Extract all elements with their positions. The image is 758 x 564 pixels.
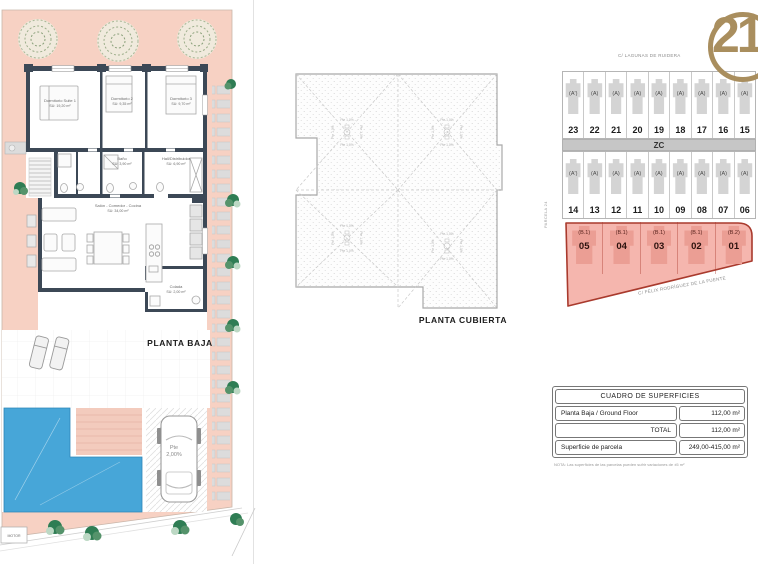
plot-number: 11 bbox=[627, 205, 647, 215]
plot-type-label: (A) bbox=[627, 171, 647, 177]
plot-number: 16 bbox=[713, 125, 733, 135]
plot-type-label: (A) bbox=[713, 171, 733, 177]
svg-text:Salón - Comedor - Cocina: Salón - Comedor - Cocina bbox=[95, 203, 142, 208]
svg-text:Pte 1,0%: Pte 1,0% bbox=[331, 231, 335, 244]
plot-cell-highlighted: (B.1) 02 bbox=[677, 222, 714, 274]
plot-number: 05 bbox=[566, 241, 602, 252]
svg-text:Pte 1,0%: Pte 1,0% bbox=[340, 249, 353, 253]
plot-number: 15 bbox=[735, 125, 755, 135]
plot-cell: (A) 11 bbox=[626, 152, 647, 218]
parcel-side-label: PARCELA 24 bbox=[543, 158, 548, 228]
svg-text:Dormitorio Suite 1: Dormitorio Suite 1 bbox=[44, 98, 77, 103]
plot-type-label: (B.1) bbox=[566, 230, 602, 236]
svg-text:Pte 1,0%: Pte 1,0% bbox=[431, 239, 435, 252]
table-note: NOTA: Las superficies de las parcelas pu… bbox=[554, 462, 684, 467]
svg-text:Hall/Distribuidor: Hall/Distribuidor bbox=[162, 156, 191, 161]
plot-cell: (A) 09 bbox=[669, 152, 690, 218]
plot-cell: (A) 13 bbox=[583, 152, 604, 218]
plot-type-label: (A) bbox=[627, 91, 647, 97]
plot-number: 21 bbox=[606, 125, 626, 135]
plot-type-label: (A) bbox=[649, 91, 669, 97]
row-value: 249,00-415,00 m² bbox=[679, 440, 745, 455]
motor-room: MOTOR bbox=[1, 527, 27, 543]
row-label: TOTAL bbox=[555, 423, 677, 438]
plot-type-label: (B.2) bbox=[716, 230, 752, 236]
roof-plan: Pte 1,0% Pte 1,0% Pte 1,0% Pte 1,0% Pte … bbox=[285, 62, 510, 332]
plot-cell: (A) 19 bbox=[648, 72, 669, 138]
plot-type-label: (A) bbox=[735, 91, 755, 97]
zc-zone-bar: ZC bbox=[562, 139, 756, 151]
plot-type-label: (A) bbox=[692, 171, 712, 177]
plot-number: 03 bbox=[641, 241, 677, 252]
row-label: Planta Baja / Ground Floor bbox=[555, 406, 677, 421]
outdoor-chairs bbox=[27, 215, 36, 267]
slope-label: Pte bbox=[170, 445, 178, 451]
slope-value: 2,00% bbox=[166, 452, 182, 458]
plan-sheet: { "floor_plan": { "title": "PLANTA BAJA"… bbox=[0, 0, 758, 564]
surfaces-table-title: CUADRO DE SUPERFICIES bbox=[555, 389, 745, 404]
svg-text:SU: 19,20 m²: SU: 19,20 m² bbox=[49, 104, 71, 108]
plot-type-label: (A) bbox=[670, 91, 690, 97]
street-name-top: C/ LAGUNAS DE RUIDERA bbox=[618, 53, 681, 58]
plot-number: 17 bbox=[692, 125, 712, 135]
svg-text:SU: 3,90 m²: SU: 3,90 m² bbox=[112, 162, 132, 166]
plot-type-label: (A) bbox=[735, 171, 755, 177]
row-value: 112,00 m² bbox=[679, 406, 745, 421]
ground-floor-title: PLANTA BAJA bbox=[147, 338, 213, 348]
svg-text:Pte 1,0%: Pte 1,0% bbox=[359, 231, 363, 244]
table-row: TOTAL 112,00 m² bbox=[555, 423, 745, 438]
plot-number: 06 bbox=[735, 205, 755, 215]
svg-text:Pte 1,0%: Pte 1,0% bbox=[459, 125, 463, 138]
plot-cell: (A') 23 bbox=[563, 72, 583, 138]
plot-number: 01 bbox=[716, 241, 752, 252]
plot-number: 10 bbox=[649, 205, 669, 215]
plot-type-label: (A) bbox=[606, 171, 626, 177]
plot-type-label: (B.1) bbox=[641, 230, 677, 236]
plot-type-label: (A) bbox=[692, 91, 712, 97]
plot-cell: (A) 21 bbox=[605, 72, 626, 138]
plot-cell-highlighted: (B.1) 05 bbox=[566, 222, 602, 274]
plot-number: 12 bbox=[606, 205, 626, 215]
plot-cell: (A) 10 bbox=[648, 152, 669, 218]
century21-logo: 21 bbox=[700, 4, 758, 90]
plot-type-label: (B.1) bbox=[603, 230, 639, 236]
plot-number: 08 bbox=[692, 205, 712, 215]
svg-text:MOTOR: MOTOR bbox=[8, 534, 21, 538]
plot-type-label: (A) bbox=[670, 171, 690, 177]
svg-text:Pte 1,0%: Pte 1,0% bbox=[459, 239, 463, 252]
plot-type-label: (B.1) bbox=[678, 230, 714, 236]
svg-text:Pte 1,0%: Pte 1,0% bbox=[440, 118, 453, 122]
svg-text:Dormitorio 3: Dormitorio 3 bbox=[170, 96, 193, 101]
svg-text:SU: 34,00 m²: SU: 34,00 m² bbox=[107, 209, 129, 213]
garden-trees bbox=[18, 19, 217, 62]
svg-text:Pte 1,0%: Pte 1,0% bbox=[340, 224, 353, 228]
logo-21-text: 21 bbox=[712, 6, 758, 64]
plot-number: 02 bbox=[678, 241, 714, 252]
plot-cell-highlighted: (B.2) 01 bbox=[715, 222, 752, 274]
roof-plan-title: PLANTA CUBIERTA bbox=[419, 315, 507, 325]
plot-cell: (A) 12 bbox=[605, 152, 626, 218]
svg-text:Baño: Baño bbox=[117, 156, 127, 161]
plot-cell: (A) 08 bbox=[691, 152, 712, 218]
svg-text:SU: 9,70 m²: SU: 9,70 m² bbox=[171, 102, 191, 106]
svg-text:Pte 1,0%: Pte 1,0% bbox=[440, 143, 453, 147]
plot-cell: (A) 22 bbox=[583, 72, 604, 138]
plot-cell: (A) 18 bbox=[669, 72, 690, 138]
table-row: Superficie de parcela 249,00-415,00 m² bbox=[555, 440, 745, 455]
plot-number: 19 bbox=[649, 125, 669, 135]
pool-deck bbox=[76, 408, 142, 455]
plot-type-label: (A) bbox=[584, 171, 604, 177]
plot-number: 18 bbox=[670, 125, 690, 135]
svg-text:Dormitorio 2: Dormitorio 2 bbox=[111, 96, 134, 101]
svg-text:Pte 1,0%: Pte 1,0% bbox=[431, 125, 435, 138]
svg-text:Pte 1,0%: Pte 1,0% bbox=[440, 232, 453, 236]
plot-type-label: (A) bbox=[713, 91, 733, 97]
svg-text:Pte 1,0%: Pte 1,0% bbox=[340, 143, 353, 147]
exterior-stairs bbox=[29, 158, 51, 196]
svg-text:SU: 2,00 m²: SU: 2,00 m² bbox=[166, 290, 186, 294]
plot-number: 09 bbox=[670, 205, 690, 215]
plot-number: 23 bbox=[563, 125, 583, 135]
plot-cell: (A) 20 bbox=[626, 72, 647, 138]
svg-text:Pte 1,0%: Pte 1,0% bbox=[440, 257, 453, 261]
svg-text:Pte 1,0%: Pte 1,0% bbox=[331, 125, 335, 138]
plot-number: 07 bbox=[713, 205, 733, 215]
table-row: Planta Baja / Ground Floor 112,00 m² bbox=[555, 406, 745, 421]
row-label: Superficie de parcela bbox=[555, 440, 677, 455]
plot-type-label: (A') bbox=[563, 91, 583, 97]
plot-cell: (A) 07 bbox=[712, 152, 733, 218]
svg-text:SU: 9,35 m²: SU: 9,35 m² bbox=[112, 102, 132, 106]
plot-number: 13 bbox=[584, 205, 604, 215]
surfaces-table: CUADRO DE SUPERFICIES Planta Baja / Grou… bbox=[552, 386, 748, 458]
plot-cell-highlighted: (B.1) 03 bbox=[640, 222, 677, 274]
row-value: 112,00 m² bbox=[679, 423, 745, 438]
plot-type-label: (A) bbox=[649, 171, 669, 177]
svg-text:Pte 1,0%: Pte 1,0% bbox=[359, 125, 363, 138]
svg-text:SU: 6,90 m²: SU: 6,90 m² bbox=[166, 162, 186, 166]
plot-type-label: (A) bbox=[606, 91, 626, 97]
plot-cell: (A) 06 bbox=[734, 152, 755, 218]
car-icon bbox=[157, 416, 201, 502]
ground-floor-plan: Pte 2,00% MOTOR bbox=[0, 0, 256, 564]
svg-text:Colada: Colada bbox=[170, 284, 183, 289]
plot-number: 04 bbox=[603, 241, 639, 252]
svg-text:Pte 1,0%: Pte 1,0% bbox=[340, 118, 353, 122]
plot-number: 20 bbox=[627, 125, 647, 135]
plot-type-label: (A') bbox=[563, 171, 583, 177]
side-pavers bbox=[212, 84, 230, 504]
plot-cell: (A') 14 bbox=[563, 152, 583, 218]
plot-cell-highlighted: (B.1) 04 bbox=[602, 222, 639, 274]
outdoor-kitchen bbox=[5, 142, 26, 154]
plot-row-highlighted: (B.1) 05 (B.1) 04 (B.1) 03 (B.1) 02 (B.2… bbox=[566, 222, 752, 274]
plot-type-label: (A) bbox=[584, 91, 604, 97]
plot-row-middle: (A') 14 (A) 13 (A) 12 (A) 11 (A) 10 (A) bbox=[562, 151, 756, 219]
plot-number: 22 bbox=[584, 125, 604, 135]
plot-number: 14 bbox=[563, 205, 583, 215]
